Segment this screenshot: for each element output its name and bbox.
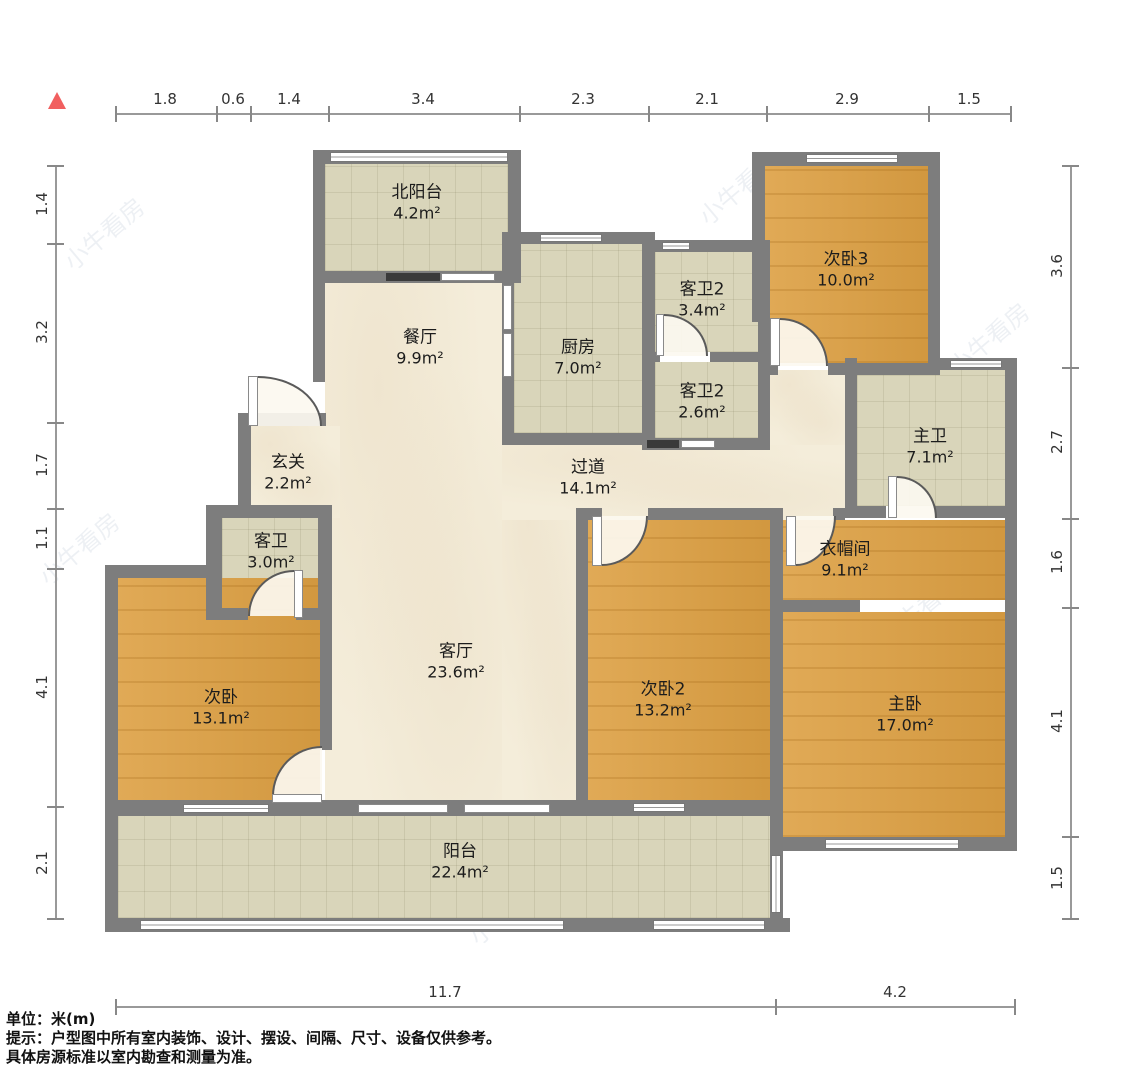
tick [1010,106,1012,122]
entry-door-leaf [248,376,258,426]
wall [770,600,860,612]
tick [47,422,64,424]
wall [770,508,783,808]
dim-top-7: 1.5 [957,90,981,108]
sliding-door-panel [647,440,679,448]
floorplan-canvas: 小牛看房 小牛看房 小牛看房 小牛看房 小牛看房 小牛看房 小牛看房 小牛看房 [0,0,1125,1087]
bedroom3-door-leaf [770,318,780,366]
master-bath-door-leaf [888,476,897,518]
window [825,839,959,849]
sliding-door-panel [464,804,550,813]
room-label-guest-bath2a: 客卫23.4m² [678,279,725,322]
wall [710,352,770,362]
room-label-guest-bath2b: 客卫22.6m² [678,381,725,424]
tick [1062,367,1079,369]
wall [105,565,118,820]
dim-left-3: 1.1 [33,526,51,550]
north-arrow-icon [48,92,66,109]
wall [206,505,222,620]
dim-left-5: 2.1 [33,851,51,875]
dim-left-2: 1.7 [33,453,51,477]
window [540,234,602,242]
tick [775,999,777,1015]
sliding-door-panel [441,273,495,281]
wall [1005,358,1017,850]
sliding-door-panel [358,804,448,813]
guest-bath-door-leaf [294,570,303,618]
watermark: 小牛看房 [55,188,151,277]
wall [845,506,886,518]
room-label-north-balcony: 北阳台4.2m² [392,182,443,225]
tick [47,806,64,808]
dim-bottom-1: 4.2 [883,983,907,1001]
tick [928,106,930,122]
room-label-living: 客厅23.6m² [427,641,485,684]
footer-tip-2: 具体房源标准以室内勘查和测量为准。 [6,1046,261,1067]
room-label-dining: 餐厅9.9m² [396,327,443,370]
window [633,803,685,812]
room-label-hallway: 过道14.1m² [559,457,617,500]
window [662,242,690,250]
sliding-door-panel [681,440,715,448]
tick [1062,836,1079,838]
dim-right-4: 1.5 [1048,866,1066,890]
tick [47,568,64,570]
dim-top-4: 2.3 [571,90,595,108]
guest-bath2a-door-leaf [656,314,664,356]
window [950,360,1002,368]
dim-left-0: 1.4 [33,192,51,216]
dim-top-3: 3.4 [411,90,435,108]
dim-right-3: 4.1 [1048,709,1066,733]
footer-unit: 单位：米(m) [6,1008,95,1029]
room-label-bedroom: 次卧13.1m² [192,687,250,730]
sliding-door-panel [503,333,512,377]
bedroom-door-leaf [272,794,322,803]
dim-right-2: 1.6 [1048,550,1066,574]
room-label-bedroom3: 次卧310.0m² [817,249,875,292]
dim-right-0: 3.6 [1048,254,1066,278]
room-label-bedroom2: 次卧213.2m² [634,679,692,722]
wall [934,506,1017,518]
wall [928,152,940,372]
tick [47,508,64,510]
dim-left-4: 4.1 [33,675,51,699]
tick [1062,607,1079,609]
hallway-extension-floor [765,370,845,445]
room-label-guest-bath: 客卫3.0m² [247,531,294,574]
wall [502,433,655,445]
dim-left-1: 3.2 [33,320,51,344]
tick [250,106,252,122]
window [653,920,765,930]
tick [1062,918,1079,920]
tick [115,106,117,122]
room-label-master-bath: 主卫7.1m² [906,426,953,469]
dim-top-6: 2.9 [835,90,859,108]
tick [216,106,218,122]
dim-top-5: 2.1 [695,90,719,108]
dim-top-2: 1.4 [277,90,301,108]
wall [206,505,330,518]
wall [313,272,325,382]
entry-door-swing [258,376,322,426]
room-label-foyer: 玄关2.2m² [264,452,311,495]
wall [105,565,222,578]
tick [766,106,768,122]
sliding-door-panel [386,273,440,281]
window [183,804,269,813]
room-label-master-bedroom: 主卧17.0m² [876,694,934,737]
dimension-line-right [1070,165,1072,920]
tick [328,106,330,122]
room-label-balcony: 阳台22.4m² [431,841,489,884]
dimension-line-bottom [115,1006,1016,1008]
bedroom2-door-leaf [592,516,602,566]
wall [648,508,770,520]
wall [238,420,251,518]
cloakroom-door-leaf [786,516,796,566]
dim-right-1: 2.7 [1048,430,1066,454]
dim-bottom-0: 11.7 [428,983,461,1001]
tick [1014,999,1016,1015]
wall [206,608,248,620]
window [140,920,564,930]
tick [519,106,521,122]
sliding-door-panel [503,285,512,330]
room-label-kitchen: 厨房7.0m² [554,337,601,380]
wall [313,152,325,272]
wall [105,808,118,932]
tick [47,918,64,920]
tick [115,999,117,1015]
wall [642,240,655,450]
wall [752,152,765,322]
window [771,855,781,913]
window [330,152,508,162]
tick [1062,518,1079,520]
footer-tip-1: 提示：户型图中所有室内装饰、设计、摆设、间隔、尺寸、设备仅供参考。 [6,1027,501,1048]
tick [648,106,650,122]
tick [47,165,64,167]
dim-top-1: 0.6 [221,90,245,108]
wall [845,358,857,518]
tick [47,243,64,245]
window [806,154,898,163]
room-label-cloakroom: 衣帽间9.1m² [820,539,871,582]
wall [320,578,332,750]
wall [576,508,588,808]
tick [1062,165,1079,167]
dim-top-0: 1.8 [153,90,177,108]
